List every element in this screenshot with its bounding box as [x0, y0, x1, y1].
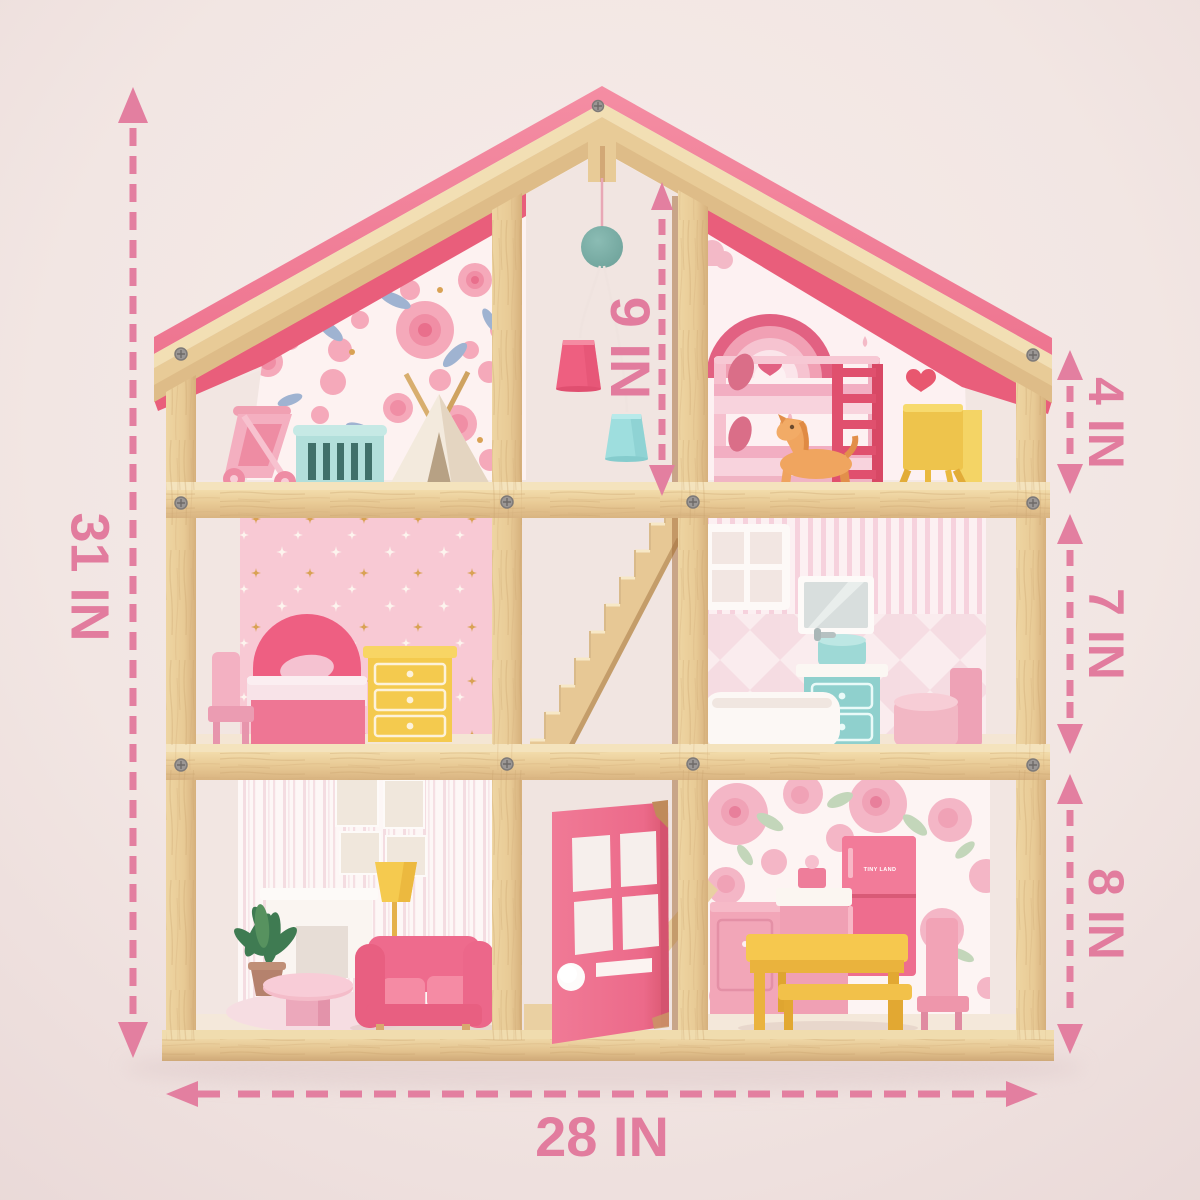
svg-text:28 IN: 28 IN: [535, 1105, 669, 1168]
svg-text:8 IN: 8 IN: [1078, 868, 1134, 960]
svg-text:9 IN: 9 IN: [599, 297, 662, 400]
svg-text:TINY LAND: TINY LAND: [864, 867, 897, 873]
svg-text:4 IN: 4 IN: [1078, 377, 1134, 469]
svg-text:7 IN: 7 IN: [1078, 588, 1134, 680]
svg-text:31 IN: 31 IN: [60, 512, 120, 641]
